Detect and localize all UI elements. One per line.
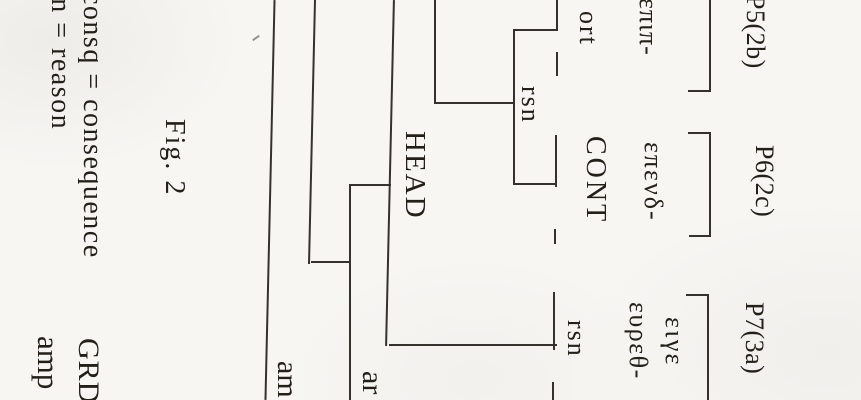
unit-bracket-p6: [709, 132, 711, 237]
label-ar: ar: [357, 371, 387, 394]
label-cont: CONT: [581, 136, 609, 224]
edge-to-rsn-upper-stem: [434, 0, 436, 104]
legend-consq: consq = consequence: [78, 0, 106, 259]
unit-span-segment: [553, 292, 555, 350]
unit-span-segment: [556, 52, 558, 76]
scanned-figure-page: rsn = reason consq = consequence Fig. 2 …: [0, 0, 861, 400]
unit-label-p7: P7(3a): [741, 302, 767, 374]
unit-span-segment: [552, 382, 554, 400]
unit-bracket-p6-foot: [689, 235, 711, 237]
unit-bracket-p5-foot: [688, 90, 711, 92]
unit-label-p5: P5(2b): [742, 0, 768, 69]
head-span-line: [385, 0, 395, 346]
greek-text-p6: επενδ-: [640, 142, 666, 222]
label-amp-mid: am: [272, 361, 302, 398]
edge-joint-upper: [349, 184, 391, 186]
label-rsn-lower: rsn: [563, 320, 589, 358]
label-amp-left: amp: [33, 336, 64, 389]
label-rsn-upper: rsn: [517, 86, 543, 124]
unit-label-p6: P6(2c): [751, 145, 777, 217]
unit-bracket-p6-foot: [688, 132, 711, 134]
label-grd: GRD: [73, 338, 103, 400]
edge-upper-left: [308, 0, 316, 264]
unit-bracket-p7: [707, 294, 709, 400]
unit-span-segment: [555, 135, 557, 187]
span-line-mid: [349, 185, 351, 400]
rsn-bracket-vertical: [513, 29, 515, 185]
edge-to-rsn-upper: [434, 102, 515, 104]
edge-to-rsn-lower: [389, 344, 557, 346]
label-head: HEAD: [400, 131, 429, 220]
edge-joint-lower: [311, 261, 351, 263]
greek-text-p7-line1: ειγε: [661, 317, 687, 367]
scan-speck: [252, 35, 260, 41]
label-ort: ort: [575, 11, 601, 46]
greek-text-p5: επιπ-: [635, 0, 661, 56]
unit-bracket-p7-foot: [686, 294, 709, 296]
unit-bracket-p5: [709, 0, 711, 92]
unit-span-segment: [556, 0, 558, 31]
unit-span-segment: [554, 229, 556, 244]
rsn-bracket-bottom-foot: [513, 183, 557, 185]
rsn-bracket-top-foot: [513, 29, 557, 31]
greek-text-p7-line2: ευρεθ-: [625, 302, 651, 380]
legend-rsn: rsn = reason: [46, 0, 74, 130]
figure-caption: Fig. 2: [160, 119, 188, 196]
span-line-outer: [264, 0, 275, 400]
